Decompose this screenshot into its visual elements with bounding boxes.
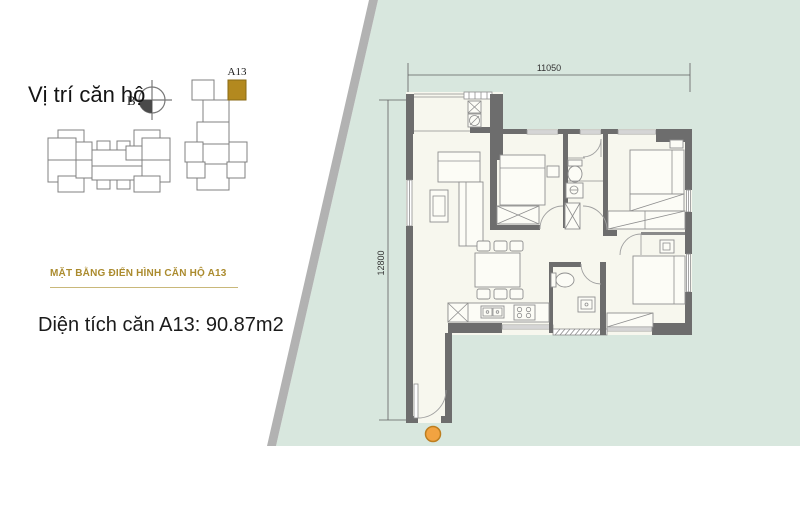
sink-2-icon xyxy=(578,297,595,312)
page-canvas: 11050 12800 xyxy=(0,0,800,511)
fridge-icon xyxy=(448,303,468,322)
unit-label: A13 xyxy=(228,66,247,78)
building-footprint-right: A13 xyxy=(185,66,247,190)
toilet-2-icon xyxy=(551,273,574,287)
width-dimension-label: 11050 xyxy=(537,63,561,73)
kitchen-sink-icon xyxy=(481,306,504,318)
heading-rule xyxy=(50,287,238,288)
kitchen-counter xyxy=(448,303,549,322)
shaft xyxy=(565,203,580,229)
section-heading: MẶT BẰNG ĐIỂN HÌNH CĂN HỘ A13 xyxy=(50,268,227,279)
height-dimension-label: 12800 xyxy=(376,250,386,275)
dryer-icon xyxy=(468,114,481,127)
location-title: Vị trí căn hộ xyxy=(28,82,145,108)
dining-table xyxy=(475,241,523,299)
washer-icon xyxy=(468,101,481,113)
floor-plan-graphic: 11050 12800 xyxy=(0,0,800,511)
building-footprint-left xyxy=(48,130,170,192)
area-text: Diện tích căn A13: 90.87m2 xyxy=(38,314,284,337)
highlighted-unit-a13[interactable] xyxy=(228,80,246,100)
stove-icon xyxy=(514,305,535,320)
entrance-marker[interactable] xyxy=(426,427,441,442)
ledge-hatch xyxy=(553,329,607,335)
